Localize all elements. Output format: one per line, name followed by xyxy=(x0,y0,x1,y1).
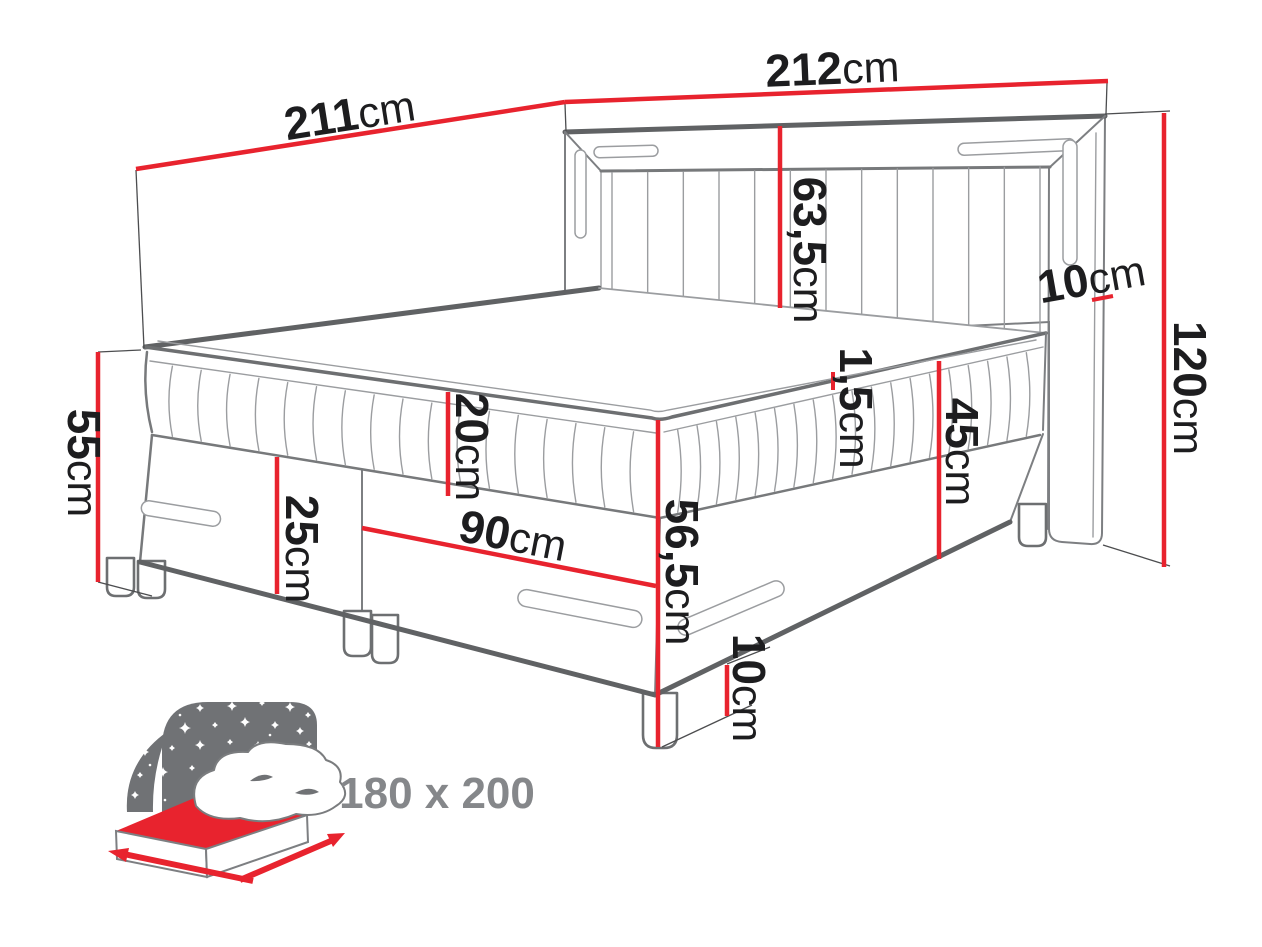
diagram-svg: 211cm 212cm 63,5cm 10cm 120cm 55cm 20cm … xyxy=(0,0,1262,947)
label-headboard-panel-height: 63,5cm xyxy=(784,177,836,324)
bed-dimension-diagram: 211cm 212cm 63,5cm 10cm 120cm 55cm 20cm … xyxy=(0,0,1262,947)
headboard-light-slot-right xyxy=(1063,140,1077,265)
label-mattress-plus-base-height: 45cm xyxy=(936,398,988,507)
headboard-light-slot-left xyxy=(575,150,586,238)
label-base-height: 25cm xyxy=(276,495,328,604)
label-head-end-mattress-height: 55cm xyxy=(58,409,110,518)
label-total-width: 212cm xyxy=(764,39,900,97)
label-floor-to-mattress-top: 56,5cm xyxy=(656,499,708,646)
label-leg-height: 10cm xyxy=(723,634,775,743)
label-topper-height: 1,5cm xyxy=(830,347,882,468)
label-bed-size: 180 x 200 xyxy=(339,769,535,818)
size-icon xyxy=(108,699,345,881)
label-mattress-height: 20cm xyxy=(446,393,498,502)
label-headboard-total-height: 120cm xyxy=(1164,321,1216,455)
label-total-length: 211cm xyxy=(280,78,418,150)
headboard-light-slot-top-left xyxy=(594,145,658,158)
